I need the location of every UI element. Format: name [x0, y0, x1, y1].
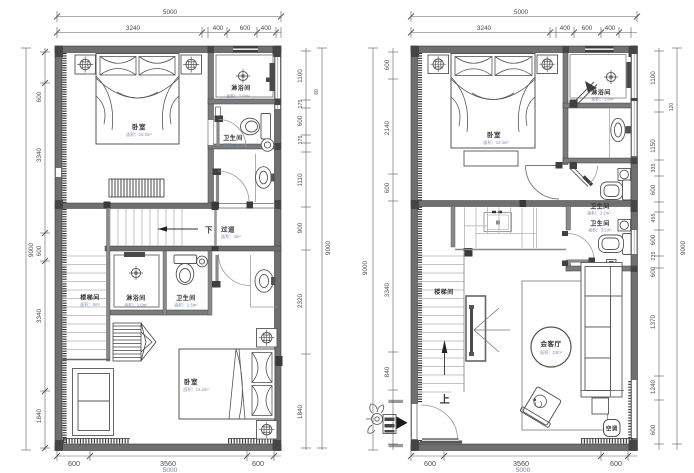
svg-text:600: 600	[297, 115, 304, 126]
svg-text:9000: 9000	[362, 260, 369, 275]
svg-text:600: 600	[384, 182, 391, 193]
svg-text:1110: 1110	[297, 173, 304, 187]
svg-text:面积：2.5m²: 面积：2.5m²	[223, 142, 247, 149]
svg-text:600: 600	[240, 25, 251, 32]
svg-text:900: 900	[297, 222, 304, 233]
svg-text:3340: 3340	[36, 308, 43, 323]
svg-text:3240: 3240	[477, 25, 492, 32]
svg-text:120: 120	[669, 103, 675, 112]
svg-text:600: 600	[68, 459, 80, 468]
svg-text:卫生间: 卫生间	[590, 203, 610, 211]
svg-text:5000: 5000	[163, 467, 178, 473]
svg-text:3340: 3340	[36, 147, 43, 162]
svg-text:卧室: 卧室	[487, 130, 501, 139]
svg-text:5000: 5000	[516, 467, 531, 473]
svg-text:卫生间: 卫生间	[176, 294, 196, 302]
svg-text:2140: 2140	[384, 120, 391, 135]
svg-text:600: 600	[582, 25, 593, 32]
svg-text:面积：16.0m²: 面积：16.0m²	[126, 131, 152, 138]
svg-text:楼梯间: 楼梯间	[80, 294, 100, 302]
svg-text:面积：14.2m²: 面积：14.2m²	[183, 386, 209, 393]
svg-text:60: 60	[314, 89, 320, 95]
svg-text:400: 400	[560, 25, 571, 32]
svg-text:400: 400	[261, 25, 272, 32]
svg-text:9000: 9000	[680, 240, 687, 255]
svg-text:3240: 3240	[126, 25, 141, 32]
svg-text:175: 175	[298, 136, 304, 145]
svg-text:840: 840	[384, 366, 391, 377]
svg-text:下: 下	[205, 226, 213, 235]
svg-text:600: 600	[610, 459, 622, 468]
svg-text:面积：3.1m²: 面积：3.1m²	[588, 227, 612, 234]
svg-text:过道: 过道	[221, 225, 235, 234]
svg-text:3340: 3340	[384, 282, 391, 297]
svg-text:5000: 5000	[163, 9, 178, 16]
svg-text:1840: 1840	[36, 408, 43, 423]
svg-text:面积：23m²: 面积：23m²	[540, 349, 563, 356]
svg-text:175: 175	[298, 100, 304, 109]
svg-text:面积：2.1m²: 面积：2.1m²	[587, 210, 611, 217]
svg-text:淋浴间: 淋浴间	[591, 89, 611, 97]
svg-text:600: 600	[36, 245, 43, 256]
svg-text:卧室: 卧室	[184, 377, 198, 386]
svg-text:600: 600	[650, 266, 657, 277]
svg-text:淋浴间: 淋浴间	[231, 84, 251, 92]
svg-text:1370: 1370	[650, 314, 657, 329]
svg-text:600: 600	[384, 59, 391, 70]
svg-text:2320: 2320	[297, 293, 304, 308]
svg-text:楼梯间: 楼梯间	[434, 288, 454, 296]
svg-text:9000: 9000	[28, 242, 35, 257]
svg-text:1100: 1100	[650, 71, 657, 85]
svg-text:400: 400	[213, 25, 224, 32]
svg-text:面积：12.4m²: 面积：12.4m²	[483, 139, 509, 146]
svg-text:会客厅: 会客厅	[541, 339, 562, 348]
svg-text:9000: 9000	[325, 240, 332, 255]
svg-text:600: 600	[36, 91, 43, 102]
svg-text:335: 335	[651, 164, 657, 173]
svg-text:面积：4m²: 面积：4m²	[221, 233, 241, 240]
svg-text:600: 600	[424, 459, 436, 468]
svg-text:面积：2.5m²: 面积：2.5m²	[174, 302, 198, 309]
svg-text:600: 600	[650, 184, 657, 195]
svg-text:1150: 1150	[650, 139, 657, 153]
svg-text:600: 600	[650, 424, 657, 435]
svg-text:面积：1.6m²: 面积：1.6m²	[226, 93, 250, 100]
svg-text:1100: 1100	[297, 69, 304, 83]
svg-text:淋浴间: 淋浴间	[126, 294, 146, 302]
svg-text:5000: 5000	[514, 9, 529, 16]
svg-text:400: 400	[605, 25, 616, 32]
svg-text:卫生间: 卫生间	[590, 220, 610, 228]
svg-text:235: 235	[651, 252, 657, 261]
svg-text:面积：1.8m²: 面积：1.8m²	[591, 96, 615, 103]
svg-text:上: 上	[440, 393, 451, 406]
svg-text:空调: 空调	[606, 425, 618, 433]
svg-text:600: 600	[252, 459, 264, 468]
svg-text:455: 455	[651, 214, 657, 223]
svg-text:卫生间: 卫生间	[223, 134, 243, 142]
svg-text:面积：5m²: 面积：5m²	[80, 301, 100, 308]
svg-text:600: 600	[650, 234, 657, 245]
svg-text:1840: 1840	[297, 404, 304, 419]
svg-text:卧室: 卧室	[132, 122, 146, 131]
svg-text:1240: 1240	[650, 379, 657, 394]
svg-text:面积：1.6m²: 面积：1.6m²	[124, 302, 148, 309]
